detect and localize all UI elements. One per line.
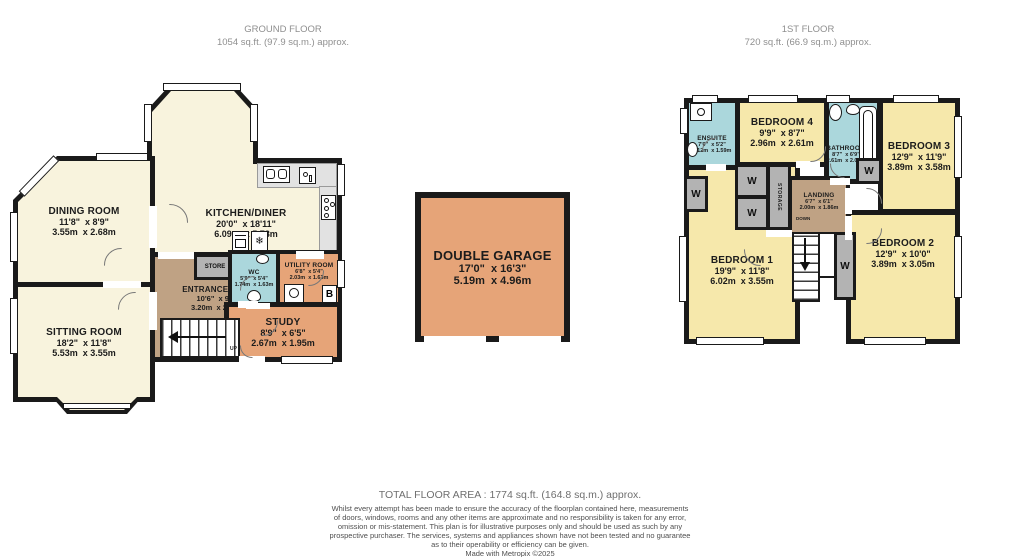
room-metric-label: 5.19m x 4.96m bbox=[454, 275, 532, 287]
window bbox=[692, 95, 718, 103]
wardrobe-label: W bbox=[747, 176, 756, 187]
down-label: DOWN bbox=[796, 216, 810, 221]
toilet-icon bbox=[829, 104, 842, 121]
disclaimer-line: prospective purchaser. The services, sys… bbox=[0, 531, 1020, 540]
room-metric-label: 5.53m x 3.55m bbox=[52, 348, 116, 358]
window bbox=[337, 164, 345, 196]
kitchen-bay-wall bbox=[147, 86, 258, 164]
garage-door-opening bbox=[499, 336, 561, 344]
toilet-icon bbox=[256, 254, 269, 264]
first-floor-header: 1ST FLOOR 720 sq.ft. (66.9 sq.m.) approx… bbox=[688, 24, 928, 50]
storage-label: STORAGE bbox=[776, 183, 782, 211]
window bbox=[680, 108, 688, 134]
window bbox=[954, 236, 962, 298]
store-label: STORE bbox=[205, 264, 226, 270]
fridge-freezer-icon: ❄ bbox=[251, 231, 268, 252]
stair-arrow-head bbox=[168, 331, 178, 343]
room-name-label: DINING ROOM bbox=[48, 206, 119, 217]
wardrobe-label: W bbox=[864, 166, 873, 177]
window bbox=[63, 403, 131, 409]
first-floor-area: 720 sq.ft. (66.9 sq.m.) approx. bbox=[688, 37, 928, 50]
room-imperial-label: 11'8" x 8'9" bbox=[59, 217, 109, 227]
room-metric-label: 3.89m x 3.05m bbox=[871, 259, 935, 269]
window bbox=[250, 104, 258, 142]
wardrobe-label: W bbox=[747, 208, 756, 219]
ground-floor-area: 1054 sq.ft. (97.9 sq.m.) approx. bbox=[158, 37, 408, 50]
wardrobe-label: W bbox=[691, 189, 700, 200]
window bbox=[163, 83, 241, 91]
kitchen-bay-floor bbox=[152, 91, 253, 164]
disclaimer-line: of doors, windows, rooms and any other i… bbox=[0, 513, 1020, 522]
disclaimer-line: omission or mis-statement. This plan is … bbox=[0, 522, 1020, 531]
disclaimer: Whilst every attempt has been made to en… bbox=[0, 504, 1020, 557]
door-opening bbox=[149, 206, 157, 248]
wardrobe: W bbox=[735, 196, 769, 230]
window bbox=[337, 260, 345, 288]
window bbox=[10, 212, 18, 262]
room-imperial-label: 12'9" x 10'0" bbox=[875, 249, 930, 259]
window bbox=[954, 116, 962, 178]
door-opening bbox=[766, 230, 792, 237]
disclaimer-line: Whilst every attempt has been made to en… bbox=[0, 504, 1020, 513]
glassware-icon bbox=[299, 167, 316, 184]
room-name-label: KITCHEN/DINER bbox=[206, 208, 287, 219]
door-opening bbox=[158, 252, 194, 259]
disclaimer-line: as to their operability or efficiency ca… bbox=[0, 540, 1020, 549]
basin-icon bbox=[846, 104, 860, 115]
room-name-label: WC bbox=[248, 269, 259, 276]
window bbox=[893, 95, 939, 103]
room-name-label: LANDING bbox=[803, 192, 834, 199]
hob-icon bbox=[321, 195, 336, 220]
room-imperial-label: 18'2" x 11'8" bbox=[57, 338, 112, 348]
room-imperial-label: 12'9" x 11'9" bbox=[892, 152, 947, 162]
room-metric-label: 2.00m x 1.86m bbox=[800, 205, 839, 211]
wardrobe: W bbox=[735, 164, 769, 198]
room-double-garage: DOUBLE GARAGE 17'0" x 16'3" 5.19m x 4.96… bbox=[415, 192, 570, 342]
metropix-credit: Made with Metropix ©2025 bbox=[0, 549, 1020, 557]
room-metric-label: 3.89m x 3.58m bbox=[887, 162, 951, 172]
door-opening bbox=[103, 281, 141, 288]
door-opening bbox=[845, 216, 852, 240]
door-opening bbox=[845, 188, 852, 214]
room-imperial-label: 9'9" x 8'7" bbox=[759, 128, 804, 138]
stair-arrow-shaft bbox=[804, 238, 806, 262]
room-metric-label: 2.96m x 2.61m bbox=[750, 138, 814, 148]
door-opening bbox=[706, 164, 726, 171]
window bbox=[679, 236, 687, 302]
ground-floor-header: GROUND FLOOR 1054 sq.ft. (97.9 sq.m.) ap… bbox=[158, 24, 408, 50]
door-opening bbox=[796, 161, 820, 168]
window bbox=[10, 298, 18, 354]
room-metric-label: 2.67m x 1.95m bbox=[251, 338, 315, 348]
door-opening bbox=[246, 303, 270, 309]
washing-machine-icon bbox=[284, 284, 304, 303]
window bbox=[748, 95, 798, 103]
boiler-icon: B bbox=[322, 285, 337, 303]
wardrobe-label: W bbox=[840, 261, 849, 272]
wardrobe: W bbox=[856, 158, 882, 184]
room-metric-label: 3.55m x 2.68m bbox=[52, 227, 116, 237]
floorplan-canvas: GROUND FLOOR 1054 sq.ft. (97.9 sq.m.) ap… bbox=[0, 0, 1020, 557]
window bbox=[826, 95, 850, 103]
total-floor-area: TOTAL FLOOR AREA : 1774 sq.ft. (164.8 sq… bbox=[0, 489, 1020, 501]
door-opening bbox=[830, 178, 850, 185]
door-opening bbox=[296, 251, 324, 259]
oven-icon bbox=[232, 231, 249, 252]
room-name-label: BEDROOM 2 bbox=[872, 238, 934, 249]
room-imperial-label: 20'0" x 18'11" bbox=[216, 219, 276, 229]
room-landing: LANDING 6'7" x 6'1" 2.00m x 1.86m DOWN bbox=[788, 176, 850, 236]
room-name-label: BEDROOM 4 bbox=[751, 117, 813, 128]
window bbox=[281, 356, 333, 364]
wardrobe: W bbox=[684, 176, 708, 212]
window bbox=[144, 104, 152, 142]
up-label: UP bbox=[230, 346, 237, 352]
stair-arrow-shaft bbox=[178, 336, 226, 338]
window bbox=[696, 337, 764, 345]
window bbox=[96, 153, 148, 161]
room-name-label: DOUBLE GARAGE bbox=[433, 248, 551, 263]
window bbox=[864, 337, 926, 345]
room-name-label: BEDROOM 3 bbox=[888, 141, 950, 152]
first-floor-title: 1ST FLOOR bbox=[688, 24, 928, 37]
room-name-label: BEDROOM 1 bbox=[711, 255, 773, 266]
door-opening bbox=[149, 292, 157, 330]
sink-icon bbox=[263, 166, 290, 183]
garage-door-opening bbox=[424, 336, 486, 344]
room-bedroom-3: BEDROOM 3 12'9" x 11'9" 3.89m x 3.58m bbox=[878, 98, 960, 214]
room-imperial-label: 17'0" x 16'3" bbox=[459, 263, 527, 275]
room-bedroom-2: BEDROOM 2 12'9" x 10'0" 3.89m x 3.05m bbox=[846, 210, 960, 344]
room-name-label: UTILITY ROOM bbox=[285, 262, 334, 269]
toilet-icon bbox=[687, 142, 698, 157]
stair-arrow-head bbox=[800, 262, 810, 271]
wardrobe: W bbox=[834, 232, 856, 300]
room-name-label: SITTING ROOM bbox=[46, 327, 122, 338]
shower-icon bbox=[690, 103, 712, 121]
room-metric-label: 6.02m x 3.55m bbox=[710, 276, 774, 286]
room-imperial-label: 19'9" x 11'8" bbox=[715, 266, 770, 276]
storage-cupboard: STORAGE bbox=[767, 164, 791, 230]
ground-floor-title: GROUND FLOOR bbox=[158, 24, 408, 37]
